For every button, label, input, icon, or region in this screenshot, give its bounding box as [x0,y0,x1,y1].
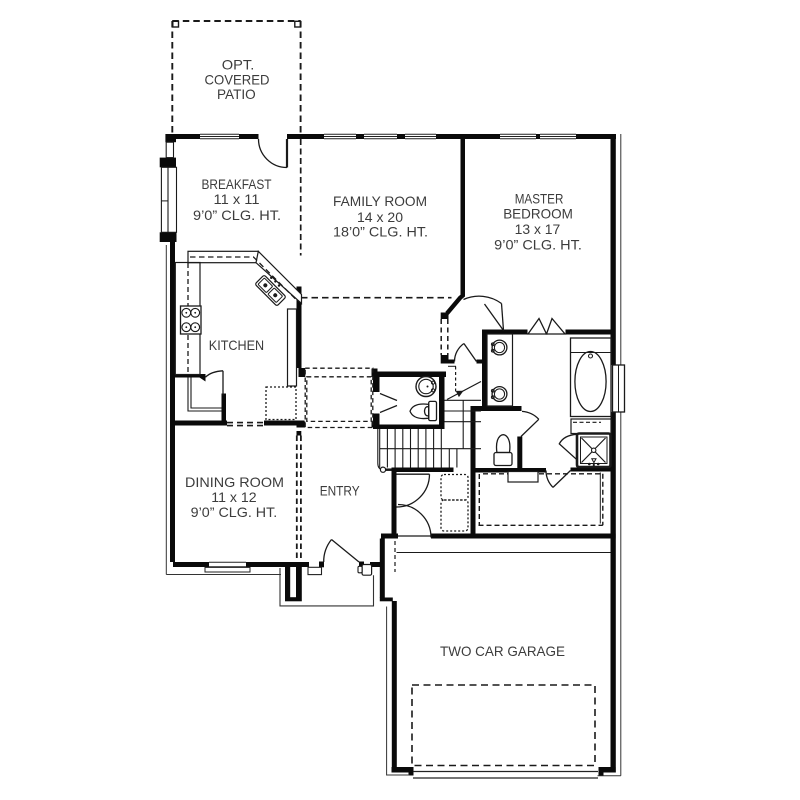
svg-text:18’0” CLG. HT.: 18’0” CLG. HT. [333,224,428,240]
svg-text:KITCHEN: KITCHEN [209,337,264,353]
svg-text:9’0” CLG. HT.: 9’0” CLG. HT. [494,237,582,253]
svg-text:11 x 11: 11 x 11 [214,191,260,207]
svg-text:11 x 12: 11 x 12 [211,489,257,505]
svg-text:PATIO: PATIO [217,86,256,102]
svg-text:BEDROOM: BEDROOM [503,206,573,222]
svg-text:13 x 17: 13 x 17 [515,221,561,237]
svg-text:TWO CAR GARAGE: TWO CAR GARAGE [440,643,565,659]
svg-text:9’0” CLG. HT.: 9’0” CLG. HT. [193,207,281,223]
svg-text:9’0” CLG. HT.: 9’0” CLG. HT. [191,504,278,520]
svg-text:ENTRY: ENTRY [320,483,361,499]
svg-text:DINING ROOM: DINING ROOM [185,474,284,490]
svg-text:OPT.: OPT. [222,57,255,73]
svg-text:BREAKFAST: BREAKFAST [202,176,272,192]
svg-text:FAMILY ROOM: FAMILY ROOM [333,193,427,209]
svg-text:MASTER: MASTER [515,191,564,207]
